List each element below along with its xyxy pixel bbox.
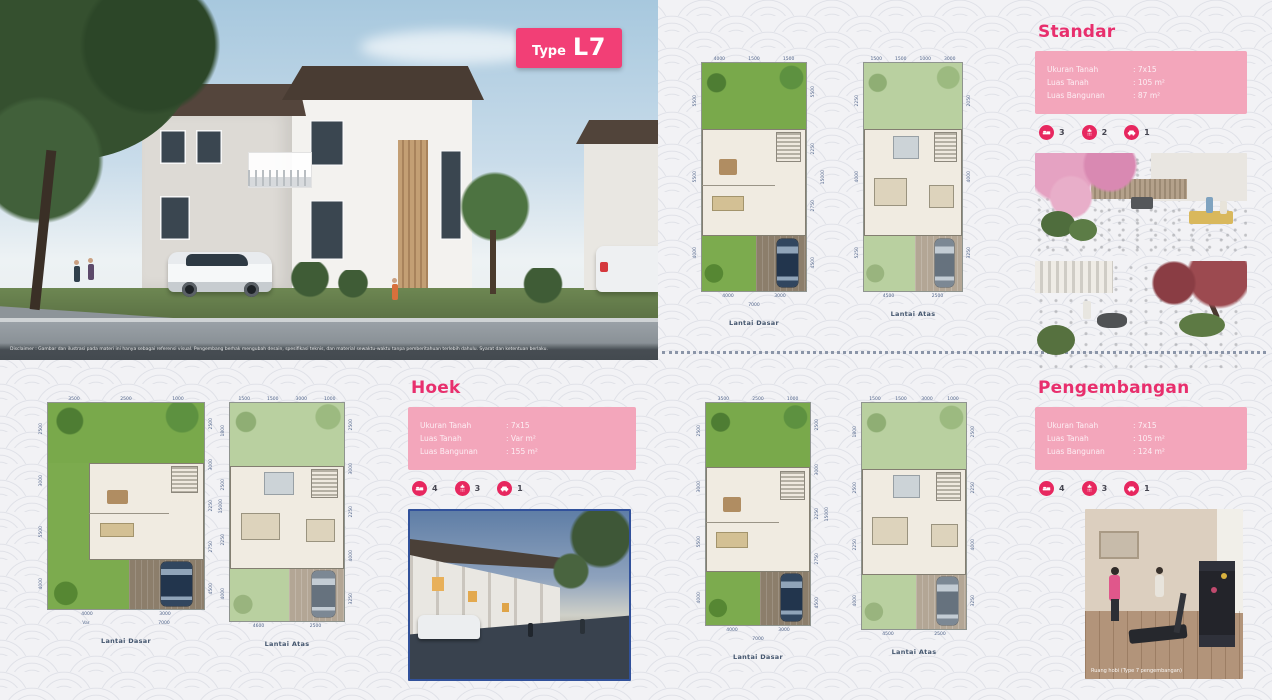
car-graphic: [312, 571, 335, 617]
yard-area: [706, 572, 810, 625]
dim-label: 4000: [971, 539, 976, 550]
bed-graphic: [306, 519, 335, 541]
car-graphic: [161, 562, 192, 606]
dim-label: 7000: [752, 637, 763, 642]
plan-label: Lantai Atas: [216, 640, 358, 648]
bathrooms-amenity: 3: [455, 481, 481, 496]
floorplan-drawing: [706, 403, 810, 625]
carport-area: [756, 236, 806, 291]
carport-area: [129, 560, 204, 609]
amenity-count: 1: [1144, 484, 1150, 493]
dim-label: 1000: [947, 397, 958, 402]
stairs-graphic: [172, 467, 197, 492]
floorplan-drawing: [702, 63, 806, 291]
stairs-graphic: [777, 133, 800, 161]
dim-label: 1800: [853, 426, 858, 437]
carport-amenity: 1: [1124, 481, 1150, 496]
jogger-graphic: [392, 284, 398, 300]
car-graphic: [937, 577, 958, 625]
section-title: Pengembangan: [1038, 378, 1247, 398]
bathroom-graphic: [893, 136, 919, 159]
lawn-area: [864, 236, 915, 291]
person-head: [1156, 567, 1163, 574]
dim-label: 5500: [697, 536, 702, 547]
dim-label: 2250: [855, 95, 860, 106]
garden-bush: [1037, 325, 1075, 355]
car-wheel: [182, 282, 197, 297]
carport-amenity: 1: [497, 481, 523, 496]
bed-graphic: [929, 185, 955, 208]
dim-label: 4500: [883, 294, 894, 299]
garden-area: [230, 403, 344, 466]
floorplan-drawing: [862, 403, 966, 629]
lawn-area: [230, 569, 289, 621]
yard-area: [230, 569, 344, 621]
plan-label: Lantai Dasar: [34, 637, 218, 645]
garden-bush: [1179, 313, 1225, 337]
dim-label: 2500: [349, 419, 354, 430]
dim-label: 4500: [815, 597, 820, 608]
dim-label: 2500: [815, 419, 820, 430]
dim-label: 2500: [752, 397, 763, 402]
dim-label: 2250: [811, 143, 816, 154]
bathroom-graphic: [264, 472, 293, 494]
stone-table: [1131, 197, 1153, 209]
plan-dims-bottom: 4000 3000: [706, 627, 810, 634]
floorplan-drawing: [230, 403, 344, 621]
floorplan-pengembangan-lantai-atas: 1500 1500 3000 1000 1800 2500 2250 4000: [848, 396, 980, 656]
dim-label: 4000: [39, 578, 44, 589]
plan-dims-bottom-total: 7000: [706, 636, 810, 643]
person-graphic: [1083, 301, 1091, 319]
white-car-graphic: [418, 615, 480, 639]
dim-label: 4500: [811, 257, 816, 268]
spec-value: : Var m²: [506, 434, 536, 443]
section-hoek: Hoek Ukuran Tanah : 7x15 Luas Tanah : Va…: [408, 378, 636, 681]
spec-label: Ukuran Tanah: [1047, 421, 1133, 430]
plan-dims-left: 2250 4000 5250: [851, 63, 863, 291]
section-pengembangan: Pengembangan Ukuran Tanah : 7x15 Luas Ta…: [1035, 378, 1247, 679]
spec-row: Ukuran Tanah : 7x15: [1047, 65, 1235, 74]
sofa-graphic: [716, 532, 747, 548]
spec-value: : 7x15: [506, 421, 530, 430]
lit-window: [502, 603, 509, 612]
house-area: [864, 129, 962, 236]
lit-window: [432, 577, 444, 591]
bathrooms-amenity: 3: [1082, 481, 1108, 496]
plan-dims-top: 1500 1500 1000 3000: [864, 56, 962, 63]
spec-row: Luas Bangunan : 87 m²: [1047, 91, 1235, 100]
wall-line: [89, 513, 170, 514]
dim-label: 4000: [697, 592, 702, 603]
dim-label: 4000: [722, 294, 733, 299]
amenity-count: 4: [432, 484, 438, 493]
dim-label: 2250: [209, 500, 214, 511]
window-graphic: [310, 120, 344, 166]
dim-label: 2250: [853, 539, 858, 550]
dim-label: 15000: [825, 507, 830, 521]
garden-area: [48, 403, 204, 463]
spec-value: : 87 m²: [1133, 91, 1160, 100]
dim-label: 3000: [349, 463, 354, 474]
person-graphic: [1155, 575, 1164, 597]
car-icon: [497, 481, 512, 496]
dim-label: 2050: [967, 95, 972, 106]
floorplan-drawing: [864, 63, 962, 291]
dim-label: 1500: [267, 397, 278, 402]
bedrooms-amenity: 4: [1039, 481, 1065, 496]
dim-label: 1000: [920, 57, 931, 62]
plan-dims-right: 2050 4000 3250: [963, 63, 975, 291]
spec-row: Ukuran Tanah : 7x15: [420, 421, 624, 430]
dining-table-graphic: [719, 159, 738, 175]
bathrooms-amenity: 2: [1082, 125, 1108, 140]
spec-table: Ukuran Tanah : 7x15 Luas Tanah : 105 m² …: [1035, 51, 1247, 114]
sofa-graphic: [712, 196, 743, 212]
spec-label: Luas Bangunan: [420, 447, 506, 456]
dim-label: 4000: [221, 588, 226, 599]
plan-dims-right: 2500 3000 2250 4000 3250: [345, 403, 357, 621]
shower-icon: [1082, 125, 1097, 140]
shower-icon: [1082, 481, 1097, 496]
dim-label: 4000: [855, 171, 860, 182]
dim-label: 2500: [934, 632, 945, 637]
plan-dims-bottom: 4600 2500: [230, 623, 344, 630]
type-badge: Type L7: [516, 28, 622, 68]
hobby-room-photo: Ruang hobi (Type 7 pengembangan): [1085, 509, 1243, 679]
floorplan-hoek-lantai-dasar: 3500 2500 1000 2500 3000 5500 4000: [34, 396, 218, 645]
dim-label: 3250: [349, 593, 354, 604]
car-graphic: [781, 574, 802, 621]
dim-label: 3000: [921, 397, 932, 402]
photo-caption: Ruang hobi (Type 7 pengembangan): [1091, 668, 1182, 674]
stone-table: [1097, 313, 1127, 328]
section-title: Hoek: [411, 378, 636, 398]
bedrooms-amenity: 3: [1039, 125, 1065, 140]
bed-graphic: [872, 517, 907, 544]
bed-graphic: [241, 513, 279, 540]
dim-label: 2250: [221, 534, 226, 545]
pedestrian-head: [74, 260, 79, 265]
dim-label: 1000: [172, 397, 183, 402]
bush-graphic: [288, 262, 332, 302]
amenity-count: 3: [475, 484, 481, 493]
dim-label: 3000: [296, 397, 307, 402]
dim-label: 5500: [693, 171, 698, 182]
dim-label: 2250: [349, 506, 354, 517]
dim-label: 3000: [209, 459, 214, 470]
plan-dims-total-right: 15000: [817, 63, 829, 291]
carport-area: [915, 236, 962, 291]
dim-label: 3000: [159, 612, 170, 617]
plan-label: Lantai Dasar: [688, 319, 820, 327]
dim-label: 2500: [120, 397, 131, 402]
yard-area: [862, 575, 966, 629]
spec-label: Luas Tanah: [420, 434, 506, 443]
dim-label: 3000: [39, 475, 44, 486]
window-graphic: [160, 196, 190, 240]
section-title: Standar: [1038, 22, 1247, 42]
car-windshield: [186, 254, 248, 266]
side-garden-area: [48, 463, 89, 560]
dim-label: 5500: [39, 526, 44, 537]
house-area: [89, 463, 204, 560]
dim-label: 3500: [718, 397, 729, 402]
garden-photo-2: [1035, 261, 1247, 370]
yard-area: [48, 560, 204, 609]
plan-dims-right: 2500 2250 4000 3250: [967, 403, 979, 629]
spec-row: Ukuran Tanah : 7x15: [1047, 421, 1235, 430]
carport-area: [289, 569, 344, 621]
plan-dims-top: 1500 1500 3000 1000: [230, 396, 344, 403]
bed-icon: [1039, 125, 1054, 140]
dim-label: 1500: [871, 57, 882, 62]
bathroom-graphic: [893, 475, 920, 498]
gym-rack: [1199, 561, 1235, 647]
amenity-count: 4: [1059, 484, 1065, 493]
spec-value: : 7x15: [1133, 65, 1157, 74]
spec-row: Luas Tanah : 105 m²: [1047, 78, 1235, 87]
dim-label: 3000: [697, 481, 702, 492]
badge-prefix: Type: [532, 44, 566, 59]
disclaimer-text: Disclaimer : Gambar dan ilustrasi pada m…: [0, 343, 658, 360]
lit-window: [468, 591, 477, 602]
dim-label: 2500: [221, 479, 226, 490]
dim-label: Var: [82, 621, 89, 626]
stairs-graphic: [781, 472, 804, 499]
house-area: [862, 469, 966, 575]
dim-label: 2500: [209, 418, 214, 429]
amenities-row: 4 3 1: [412, 481, 636, 496]
dim-label: 2500: [39, 423, 44, 434]
car-graphic: [777, 239, 798, 287]
spec-table: Ukuran Tanah : 7x15 Luas Tanah : Var m² …: [408, 407, 636, 470]
spec-label: Luas Bangunan: [1047, 447, 1133, 456]
tree-graphic: [549, 551, 593, 591]
pergola-graphic: [1035, 261, 1113, 293]
car-graphic: [935, 239, 955, 287]
dim-label: 4000: [853, 595, 858, 606]
car-icon: [1124, 481, 1139, 496]
lawn-area: [48, 560, 129, 609]
car-icon: [1124, 125, 1139, 140]
house-area: [706, 467, 810, 571]
plan-dims-left: 2500 3000 5500 4000: [35, 403, 47, 609]
car-taillight: [600, 262, 608, 272]
person-graphic: [1111, 599, 1119, 621]
plan-dims-bottom: 4000 3000: [702, 293, 806, 300]
plan-label: Lantai Atas: [850, 310, 976, 318]
dim-label: 1500: [783, 57, 794, 62]
bed-graphic: [931, 524, 958, 547]
spec-value: : 124 m²: [1133, 447, 1165, 456]
plan-dims-left: 2500 3000 5500 4000: [693, 403, 705, 625]
pedestrian-graphic: [74, 266, 80, 282]
plan-dims-bottom: 4500 2500: [862, 631, 966, 638]
balcony-railing: [248, 170, 310, 186]
person-graphic: [1109, 575, 1120, 601]
plan-dims-top: 4000 1500 1500: [702, 56, 806, 63]
gym-equipment: [1221, 573, 1227, 579]
plan-label: Lantai Atas: [848, 648, 980, 656]
dim-label: 2250: [815, 508, 820, 519]
person-graphic: [528, 623, 533, 637]
plan-dims-top: 3500 2500 1000: [706, 396, 810, 403]
dim-label: 3000: [815, 464, 820, 475]
neighbor-house-roof: [576, 120, 658, 144]
stairs-graphic: [937, 473, 960, 501]
dim-label: 2500: [932, 294, 943, 299]
spec-row: Luas Tanah : 105 m²: [1047, 434, 1235, 443]
dim-label: 5500: [693, 95, 698, 106]
spec-table: Ukuran Tanah : 7x15 Luas Tanah : 105 m² …: [1035, 407, 1247, 470]
amenity-count: 1: [1144, 128, 1150, 137]
wood-slat-facade: [398, 140, 428, 288]
garden-area: [706, 403, 810, 467]
garden-area: [702, 63, 806, 129]
plan-dims-bottom: 4000 3000: [48, 611, 204, 618]
dim-label: 1000: [324, 397, 335, 402]
person-graphic: [1206, 197, 1213, 213]
dim-label: 4000: [726, 628, 737, 633]
floorplan-standar-lantai-atas: 1500 1500 1000 3000 2250 4000 5250: [850, 56, 976, 318]
spec-label: Ukuran Tanah: [1047, 65, 1133, 74]
carport-area: [760, 572, 810, 625]
street-photo: [408, 509, 631, 681]
spec-label: Luas Tanah: [1047, 78, 1133, 87]
dim-label: 3000: [944, 57, 955, 62]
lawn-area: [702, 236, 756, 291]
dim-label: 4500: [209, 583, 214, 594]
yard-area: [864, 236, 962, 291]
dim-label: 4500: [882, 632, 893, 637]
floorplan-standar-lantai-dasar: 4000 1500 1500 5500 5500 4000: [688, 56, 820, 327]
gym-equipment: [1211, 587, 1217, 593]
dim-label: 1000: [787, 397, 798, 402]
window-graphic: [160, 130, 186, 164]
maple-tree: [1145, 261, 1203, 305]
spec-row: Luas Tanah : Var m²: [420, 434, 624, 443]
dim-label: 1800: [221, 425, 226, 436]
dim-label: 1500: [869, 397, 880, 402]
sofa-graphic: [100, 523, 134, 538]
dim-label: 5500: [811, 86, 816, 97]
dim-label: 2500: [310, 624, 321, 629]
dim-label: 1500: [895, 57, 906, 62]
dim-label: 2250: [971, 482, 976, 493]
garden-bush: [1069, 219, 1097, 241]
wall-line: [706, 522, 779, 523]
dim-label: 1500: [895, 397, 906, 402]
plan-dims-left: 1800 2500 2250 4000: [217, 403, 229, 621]
plan-dims-left: 5500 5500 4000: [689, 63, 701, 291]
bedrooms-amenity: 4: [412, 481, 438, 496]
floorplan-pengembangan-lantai-dasar: 3500 2500 1000 2500 3000 5500 4000: [692, 396, 824, 661]
spec-label: Ukuran Tanah: [420, 421, 506, 430]
dim-label: 1500: [239, 397, 250, 402]
house-area: [230, 466, 344, 568]
dim-label: 2750: [811, 200, 816, 211]
bush-graphic: [520, 268, 566, 308]
house-area: [702, 129, 806, 236]
carport-amenity: 1: [1124, 125, 1150, 140]
window-graphic: [310, 200, 344, 260]
dim-label: 2750: [815, 553, 820, 564]
dim-label: 4000: [967, 171, 972, 182]
brochure-page: Disclaimer : Gambar dan ilustrasi pada m…: [0, 0, 1272, 700]
tree-trunk: [490, 230, 496, 294]
carport-area: [916, 575, 966, 629]
plan-dims-bottom-total: 7000: [702, 302, 806, 309]
dim-label: 2500: [853, 482, 858, 493]
dim-label: 3250: [971, 595, 976, 606]
plan-dims-top: 1500 1500 3000 1000: [862, 396, 966, 403]
bed-graphic: [874, 178, 907, 206]
dim-label: 3000: [774, 294, 785, 299]
garden-area: [862, 403, 966, 469]
bush-graphic: [336, 270, 370, 302]
amenity-count: 3: [1102, 484, 1108, 493]
pedestrian-head: [88, 258, 93, 263]
spec-label: Luas Bangunan: [1047, 91, 1133, 100]
lawn-area: [862, 575, 916, 629]
spec-value: : 155 m²: [506, 447, 538, 456]
person-graphic: [1220, 201, 1227, 214]
dim-label: 15000: [821, 170, 826, 184]
amenities-row: 3 2 1: [1039, 125, 1247, 140]
dim-label: 2500: [971, 426, 976, 437]
plan-dims-left: 1800 2500 2250 4000: [849, 403, 861, 629]
dim-label: 5250: [855, 247, 860, 258]
plan-dims-total-right: 15000: [821, 403, 833, 625]
person-head: [1111, 567, 1119, 575]
yard-area: [702, 236, 806, 291]
stairs-graphic: [935, 133, 957, 161]
bed-icon: [412, 481, 427, 496]
section-standar: Standar Ukuran Tanah : 7x15 Luas Tanah :…: [1035, 22, 1247, 370]
floorplan-drawing: [48, 403, 204, 609]
plan-dims-bottom2: Var 7000: [48, 620, 204, 627]
wall-frame: [1099, 531, 1139, 559]
dim-label: 3000: [778, 628, 789, 633]
spec-label: Luas Tanah: [1047, 434, 1133, 443]
plan-label: Lantai Dasar: [692, 653, 824, 661]
dining-table-graphic: [107, 490, 128, 505]
amenity-count: 2: [1102, 128, 1108, 137]
spec-value: : 105 m²: [1133, 78, 1165, 87]
dim-label: 2750: [209, 541, 214, 552]
dim-label: 3500: [68, 397, 79, 402]
pedestrian-graphic: [88, 264, 94, 280]
floorplan-hoek-lantai-atas: 1500 1500 3000 1000 1800 2500 2250 4000: [216, 396, 358, 648]
garden-photo-1: [1035, 153, 1247, 256]
plan-dims-bottom: 4500 2500: [864, 293, 962, 300]
house-right-roof: [282, 66, 484, 100]
person-graphic: [580, 619, 585, 634]
dim-label: 7000: [748, 303, 759, 308]
amenities-row: 4 3 1: [1039, 481, 1247, 496]
window-graphic: [196, 130, 222, 164]
dim-label: 7000: [158, 621, 169, 626]
stairs-graphic: [312, 470, 337, 497]
dim-label: 3250: [967, 247, 972, 258]
dim-label: 1500: [748, 57, 759, 62]
garden-area: [864, 63, 962, 129]
dim-label: 4000: [714, 57, 725, 62]
dim-label: 4600: [253, 624, 264, 629]
dining-table-graphic: [723, 497, 742, 513]
dim-label: 4000: [693, 247, 698, 258]
